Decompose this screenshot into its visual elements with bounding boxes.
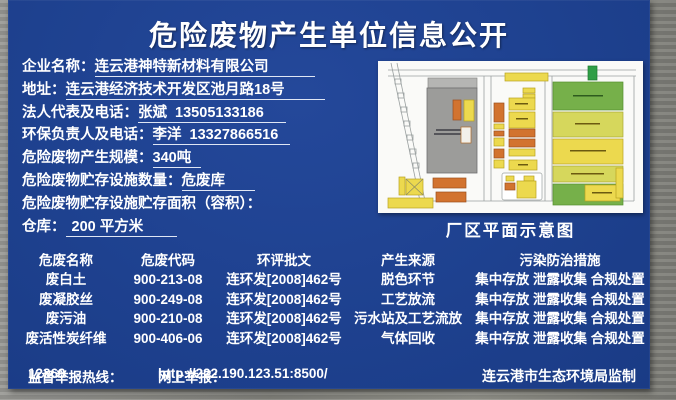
field-value: 张斌 13505133186 [138, 105, 286, 123]
cell-source: 脱色环节 [346, 270, 470, 289]
waste-table: 危废名称 危废代码 环评批文 产生来源 污染防治措施 废白土 900-213-0… [8, 251, 650, 348]
field-label: 危险废物产生规模： [22, 150, 153, 166]
cell-measures: 集中存放 泄露收集 合规处置 [470, 290, 650, 309]
company-info-section: 企业名称：连云港神特新材料有限公司 地址：连云港经济技术开发区池月路18号 法人… [22, 56, 325, 238]
site-plan-map [378, 61, 643, 213]
field-label: 环保负责人及电话： [22, 127, 153, 143]
field-label: 仓库： [22, 219, 66, 235]
online-report-url: http://222.190.123.51:8500/ [158, 366, 328, 381]
field-value: 连云港经济技术开发区池月路18号 [66, 82, 325, 100]
cell-source: 污水站及工艺流放 [346, 309, 470, 328]
cell-waste-name: 废凝胶丝 [18, 290, 114, 309]
cell-source: 工艺放流 [346, 290, 470, 309]
field-production-scale: 危险废物产生规模：340吨 [22, 147, 325, 170]
table-header-name: 危废名称 [18, 251, 114, 270]
field-label: 法人代表及电话： [22, 105, 138, 121]
table-header-measure: 污染防治措施 [470, 251, 650, 270]
field-storage-facility-count: 危险废物贮存设施数量：危废库 [22, 170, 325, 193]
cell-permit: 连环发[2008]462号 [222, 329, 346, 348]
hotline-number: 12369 [28, 366, 66, 381]
table-header-code: 危废代码 [114, 251, 222, 270]
site-plan-drawing [378, 61, 643, 213]
table-row: 废白土 900-213-08 连环发[2008]462号 脱色环节 集中存放 泄… [8, 270, 650, 289]
map-caption: 厂区平面示意图 [378, 217, 643, 241]
cell-waste-code: 900-210-08 [114, 309, 222, 328]
authority-credit: 连云港市生态环境局监制 [482, 366, 636, 386]
cell-waste-name: 废活性炭纤维 [18, 329, 114, 348]
table-header-source: 产生来源 [346, 251, 470, 270]
cell-waste-code: 900-213-08 [114, 270, 222, 289]
field-address: 地址：连云港经济技术开发区池月路18号 [22, 79, 325, 102]
info-board: 危险废物产生单位信息公开 企业名称：连云港神特新材料有限公司 地址：连云港经济技… [8, 0, 650, 389]
field-value: 200 平方米 [66, 219, 178, 237]
field-value: 李洋 13327866516 [153, 127, 291, 145]
cell-waste-name: 废污油 [18, 309, 114, 328]
field-value: 危废库 [182, 173, 256, 191]
field-value: 连云港神特新材料有限公司 [95, 59, 315, 77]
footer-bar: 监督举报热线： 12369 网上举报：http://222.190.123.51… [8, 366, 650, 386]
field-env-manager-phone: 环保负责人及电话：李洋 13327866516 [22, 124, 325, 147]
map-bottom-blocks [388, 173, 542, 208]
map-main-building [427, 78, 477, 173]
cell-permit: 连环发[2008]462号 [222, 309, 346, 328]
cell-waste-code: 900-249-08 [114, 290, 222, 309]
field-enterprise-name: 企业名称：连云港神特新材料有限公司 [22, 56, 325, 79]
cell-waste-name: 废白土 [18, 270, 114, 289]
cell-waste-code: 900-406-06 [114, 329, 222, 348]
field-label: 地址： [22, 82, 66, 98]
field-legal-rep-phone: 法人代表及电话：张斌 13505133186 [22, 102, 325, 125]
photo-frame: 危险废物产生单位信息公开 企业名称：连云港神特新材料有限公司 地址：连云港经济技… [0, 0, 676, 400]
cell-measures: 集中存放 泄露收集 合规处置 [470, 309, 650, 328]
field-storage-area-heading: 危险废物贮存设施贮存面积（容积）： [22, 193, 325, 216]
field-warehouse-area: 仓库：200 平方米 [22, 216, 325, 239]
table-row: 废活性炭纤维 900-406-06 连环发[2008]462号 气体回收 集中存… [8, 329, 650, 348]
table-header-row: 危废名称 危废代码 环评批文 产生来源 污染防治措施 [8, 251, 650, 270]
field-label: 企业名称： [22, 59, 95, 75]
field-label: 危险废物贮存设施数量： [22, 173, 182, 189]
table-header-permit: 环评批文 [222, 251, 346, 270]
cell-source: 气体回收 [346, 329, 470, 348]
map-right-blocks [553, 82, 623, 205]
cell-permit: 连环发[2008]462号 [222, 270, 346, 289]
cell-measures: 集中存放 泄露收集 合规处置 [470, 270, 650, 289]
page-title: 危险废物产生单位信息公开 [8, 14, 650, 54]
table-row: 废污油 900-210-08 连环发[2008]462号 污水站及工艺流放 集中… [8, 309, 650, 328]
table-row: 废凝胶丝 900-249-08 连环发[2008]462号 工艺放流 集中存放 … [8, 290, 650, 309]
field-label: 危险废物贮存设施贮存面积（容积）： [22, 196, 261, 212]
cell-permit: 连环发[2008]462号 [222, 290, 346, 309]
cell-measures: 集中存放 泄露收集 合规处置 [470, 329, 650, 348]
field-value: 340吨 [153, 150, 202, 168]
